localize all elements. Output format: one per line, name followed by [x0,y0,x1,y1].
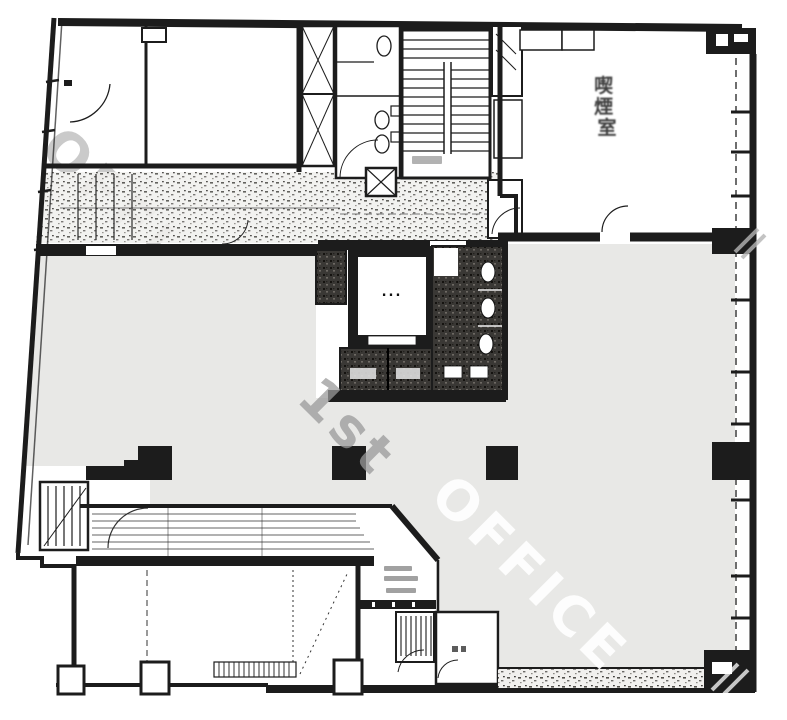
column-foot [141,662,169,694]
toilet-fixture [479,334,493,354]
pipe-shaft-dark [316,250,346,304]
toilet-fixture [377,36,391,56]
door-arc [602,206,628,232]
lower-left-room [58,566,362,694]
illegible-label-smudge [384,576,418,581]
shaft-with-x [302,26,334,166]
toilet-fixture [481,298,495,318]
staircase [402,30,490,178]
illegible-label-smudge [384,566,412,571]
top-right-corner-block [706,28,756,54]
illegible-label-smudge [452,646,458,652]
toilet-fixture [375,111,389,129]
elevator-dots: ... [382,285,403,300]
sink-fixture [444,366,462,378]
storage-room [436,612,498,684]
floor-plan: OFFICE [0,0,787,720]
illegible-label-smudge [412,156,442,164]
column-foot [58,666,84,694]
right-column [486,446,518,480]
lower-corridor [76,506,438,566]
illegible-label-smudge [461,646,466,652]
floor-plan-drawing: OFFICE [0,0,787,720]
corridor-band [36,172,508,256]
left-column [138,446,172,480]
smoking-room-label: 喫 煙 室 [594,74,620,139]
sink-fixture [470,366,488,378]
toilet-fixture [481,262,495,282]
wc-area [336,26,400,196]
right-wall-column [712,442,756,480]
column-foot [334,660,362,694]
lower-stairs [396,612,434,662]
smoking-room [498,26,737,243]
illegible-label-smudge [386,588,416,593]
toilet-fixture [375,135,389,153]
